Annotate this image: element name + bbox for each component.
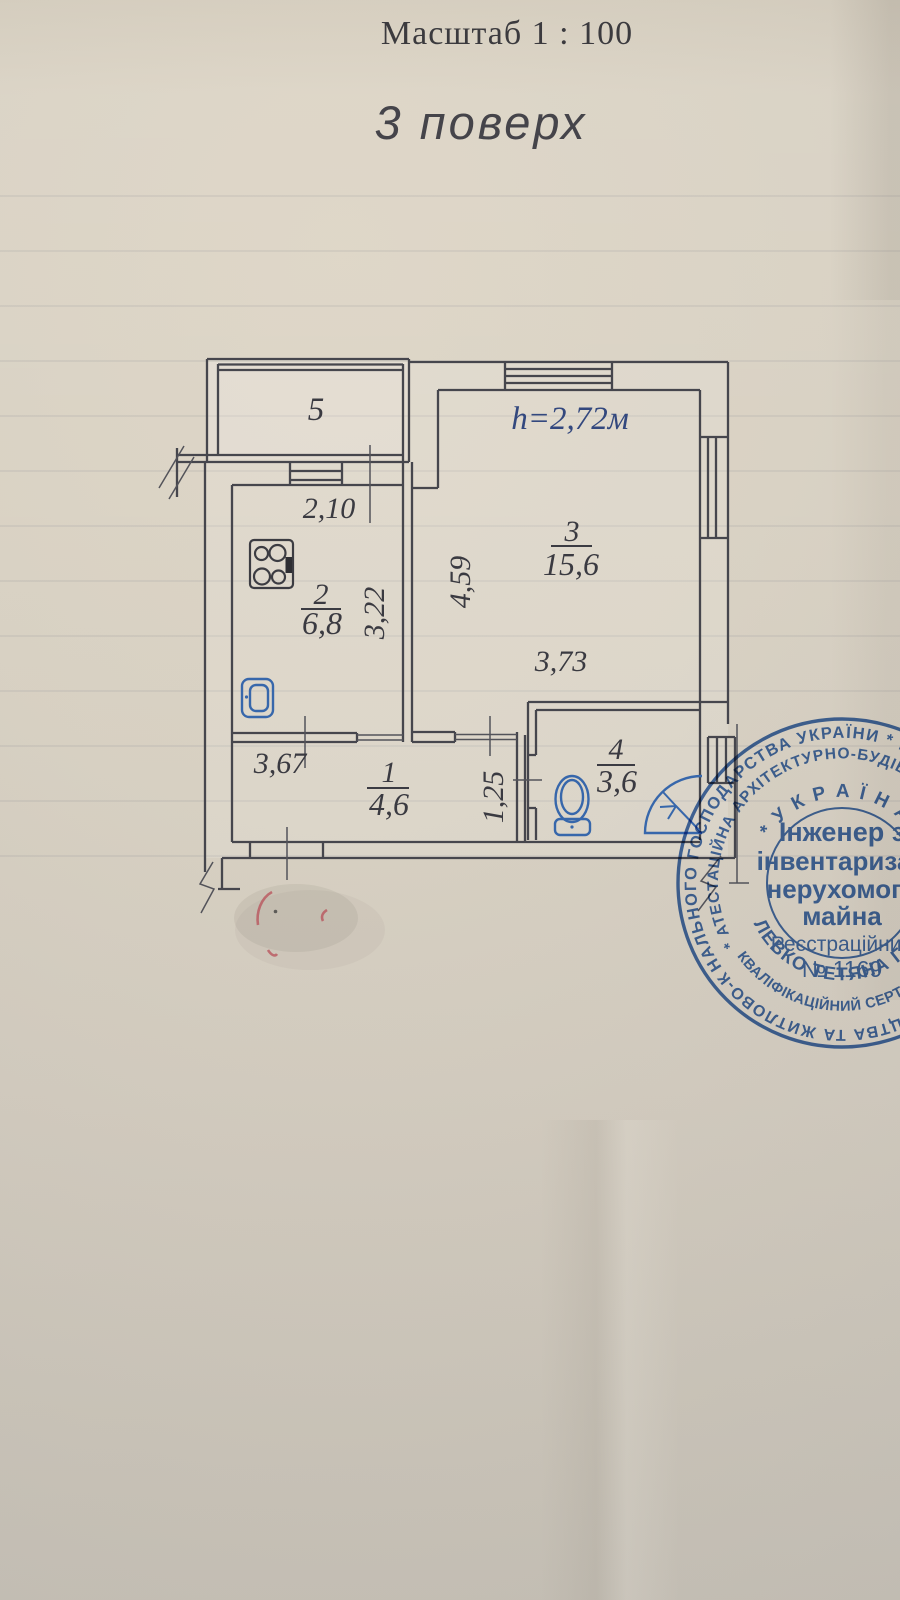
scanned-floor-plan-page: Масштаб 1 : 100 3 поверх xyxy=(0,0,900,1600)
room-5-number: 5 xyxy=(308,392,325,428)
room-4-area: 3,6 xyxy=(596,763,637,799)
dim-hall-width: 3,67 xyxy=(253,747,309,780)
stamp-registration-number: № 1169 xyxy=(802,956,883,982)
room-1-number: 1 xyxy=(382,756,397,789)
floor-title: 3 поверх xyxy=(375,96,588,149)
pencil-dot xyxy=(274,910,278,914)
dim-living-depth: 4,59 xyxy=(444,556,477,609)
entrance-annotations xyxy=(234,884,385,970)
room-1-area: 4,6 xyxy=(369,786,409,822)
room-3-number: 3 xyxy=(564,515,580,548)
stamp-title-line3: нерухомого xyxy=(767,874,900,904)
dim-balcony-door: 2,10 xyxy=(303,492,356,525)
stamp-title-line2: інвентаризац xyxy=(757,846,900,876)
floor-plan: 5 2,10 2 6,8 3,22 h=2,72м 4,59 3 15,6 3,… xyxy=(159,359,749,913)
stamp-registration-label: Реєстраційний xyxy=(771,933,900,956)
wall-break-bottom-left xyxy=(200,862,214,913)
dim-kitchen: 3,22 xyxy=(358,587,391,641)
dim-living-width: 3,73 xyxy=(534,645,588,678)
stamp-title-line4: майна xyxy=(802,901,882,931)
room-4-number: 4 xyxy=(609,733,624,766)
room-2-area: 6,8 xyxy=(302,605,342,641)
room-3-area: 15,6 xyxy=(543,546,599,582)
dim-corridor: 1,25 xyxy=(477,771,510,824)
floor-plan-drawing: Масштаб 1 : 100 3 поверх xyxy=(0,0,900,1600)
gray-smudge-halo xyxy=(235,890,385,970)
scale-title: Масштаб 1 : 100 xyxy=(381,15,633,52)
stamp-title-line1: Інженер з xyxy=(779,817,900,847)
ceiling-height-note: h=2,72м xyxy=(511,401,629,437)
